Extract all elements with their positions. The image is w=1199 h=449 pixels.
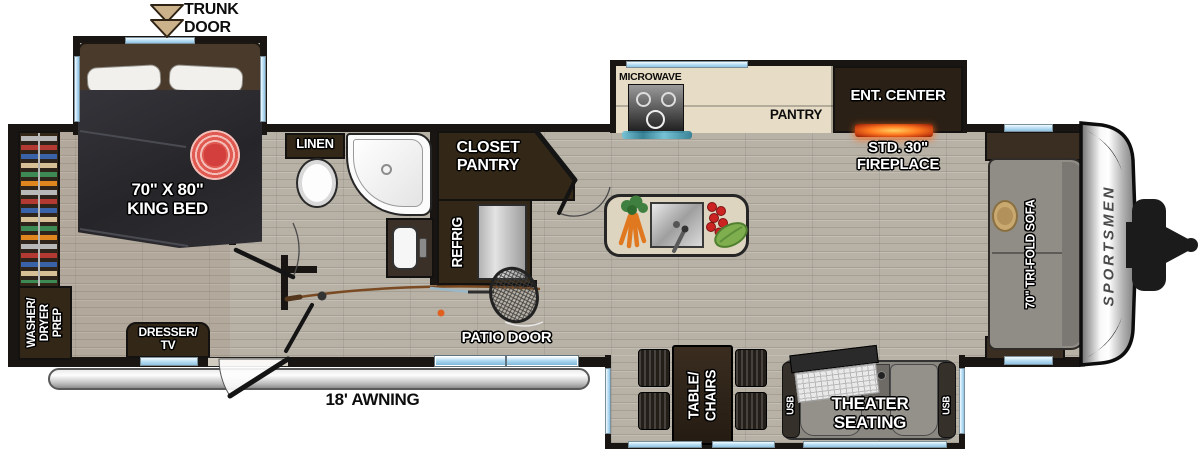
island-sink-drain (673, 221, 680, 228)
awning-tube (48, 368, 590, 390)
hall-stub-wall-v (281, 255, 288, 310)
bed-rug-center (204, 144, 226, 166)
closet-pantry-label: CLOSET PANTRY (437, 139, 539, 174)
rv-floorplan: WASHER/ DRYER PREP 70" X 80" KING BED LI… (0, 0, 1199, 449)
closet-rod (38, 133, 40, 286)
washer-dryer-prep-label: WASHER/ DRYER PREP (18, 286, 72, 360)
sofa-back-cushion (1062, 162, 1082, 346)
cooktop-burner-1 (636, 92, 651, 107)
bedroom-slide-top-window (125, 37, 195, 44)
patio-door-divider (505, 356, 507, 366)
linen-label: LINEN (285, 137, 345, 151)
dinette-chair-3 (735, 349, 767, 387)
stove-accent (622, 131, 692, 139)
living-slide-right-window (959, 368, 965, 434)
bedroom-slide-right-window (260, 56, 266, 122)
king-bed-label: 70" X 80" KING BED (100, 181, 235, 218)
dinette-chair-1 (638, 349, 670, 387)
theater-seating-label: THEATER SEATING (800, 395, 940, 432)
dinette-chair-4 (735, 392, 767, 430)
fireplace-label: STD. 30" FIREPLACE (828, 140, 968, 173)
cooktop-burner-3 (646, 110, 665, 129)
awning-label: 18' AWNING (290, 391, 455, 410)
patio-door-label: PATIO DOOR (435, 330, 578, 347)
trunk-door-label: TRUNK DOOR (184, 1, 254, 36)
front-bottom-window (1004, 356, 1053, 365)
bed-pillow-left (86, 64, 161, 94)
dresser-tv-label: DRESSER/ TV (126, 326, 210, 352)
usb-left-label: USB (782, 374, 800, 436)
ent-center-label: ENT. CENTER (833, 88, 963, 105)
dinette-chair-2 (638, 392, 670, 430)
sofa-header-cabinet (985, 131, 1085, 161)
fireplace (855, 124, 933, 137)
left-wall (8, 124, 18, 367)
living-slide-left-window (605, 368, 611, 434)
brand-label: SPORTSMEN (1086, 145, 1132, 345)
hitch (1126, 199, 1198, 291)
usb-right-label: USB (938, 374, 956, 436)
kitchen-window (626, 61, 748, 68)
microwave-label: MICROWAVE (619, 72, 709, 84)
bedroom-slide-left-window (74, 56, 80, 122)
bath-faucet (419, 238, 427, 258)
bath-sink (392, 226, 418, 270)
refrig-label: REFRIG (437, 199, 479, 285)
table-chairs-label: TABLE/ CHAIRS (672, 345, 733, 445)
refrig-appliance (477, 204, 527, 280)
cooktop-burner-2 (661, 92, 676, 107)
front-top-window (1004, 124, 1053, 132)
bed-pillow-right (168, 64, 243, 94)
dresser-window (140, 357, 198, 366)
shower-drain (381, 164, 392, 175)
living-slide-bottom-window-3 (803, 441, 947, 448)
pantry-label: PANTRY (758, 108, 834, 123)
trunk-door-arrow-icon (151, 5, 183, 37)
entry-door-threshold (208, 357, 288, 367)
toilet (296, 158, 338, 208)
sofa-label: 70" TRI-FOLD SOFA (1010, 160, 1050, 348)
hall-stub-wall-h (281, 266, 317, 273)
